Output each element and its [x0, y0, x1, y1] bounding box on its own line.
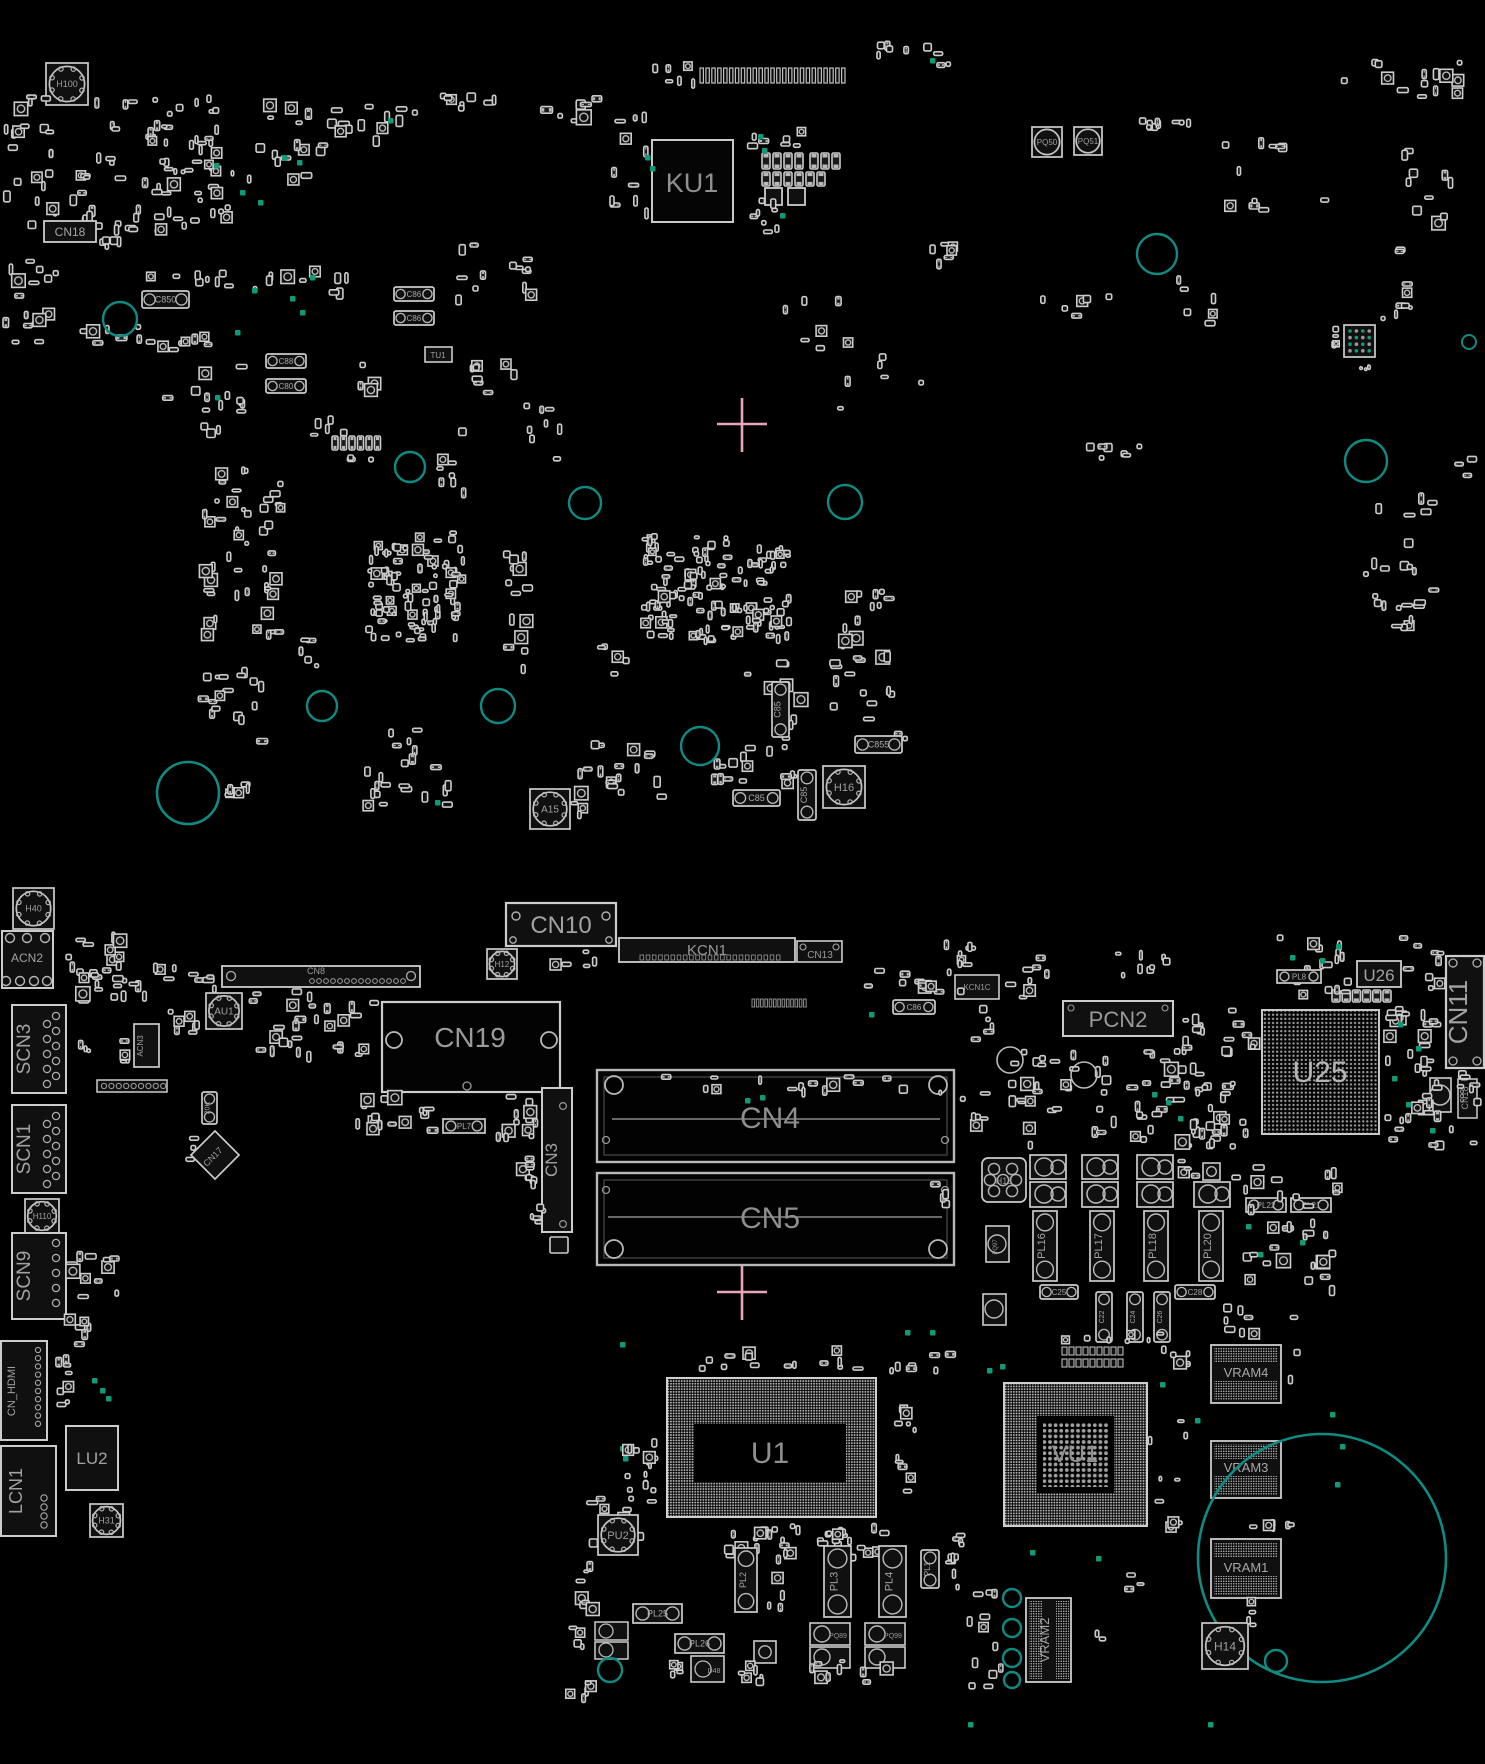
- svg-text:PL7: PL7: [457, 1122, 472, 1131]
- svg-text:VRAM1: VRAM1: [1224, 1560, 1269, 1575]
- svg-text:U25: U25: [1292, 1056, 1347, 1089]
- svg-text:LU2: LU2: [76, 1449, 107, 1468]
- svg-text:PL26: PL26: [689, 1639, 710, 1649]
- svg-text:AU1: AU1: [214, 1007, 234, 1018]
- svg-text:KCN1C: KCN1C: [963, 983, 990, 992]
- svg-text:PL4: PL4: [884, 1572, 896, 1592]
- svg-text:PQ51: PQ51: [1078, 137, 1099, 146]
- svg-text:C85: C85: [748, 793, 765, 803]
- svg-text:CN10: CN10: [530, 912, 591, 939]
- svg-text:H110: H110: [33, 1212, 52, 1221]
- svg-text:SCN1: SCN1: [14, 1124, 35, 1175]
- svg-text:C85: C85: [773, 701, 783, 718]
- svg-text:PU2: PU2: [607, 1530, 628, 1542]
- svg-text:C80: C80: [279, 382, 294, 391]
- svg-text:PL3: PL3: [829, 1572, 841, 1592]
- svg-text:C88: C88: [279, 357, 294, 366]
- svg-text:PL16: PL16: [1036, 1233, 1048, 1259]
- svg-text:PL18: PL18: [1147, 1233, 1159, 1259]
- svg-text:H13: H13: [996, 1176, 1013, 1186]
- svg-text:A15: A15: [541, 805, 559, 816]
- svg-text:H12: H12: [495, 960, 510, 969]
- svg-text:PQ99: PQ99: [884, 1633, 902, 1640]
- svg-text:H31: H31: [98, 1516, 115, 1526]
- svg-text:PL8: PL8: [1292, 972, 1307, 981]
- svg-text:U26: U26: [1363, 966, 1394, 985]
- svg-text:C26: C26: [1157, 1310, 1164, 1323]
- svg-text:CN_HDMI: CN_HDMI: [6, 1366, 18, 1416]
- svg-text:ACN3: ACN3: [136, 1035, 145, 1057]
- svg-text:CN19: CN19: [434, 1022, 506, 1053]
- svg-text:20K: 20K: [205, 1101, 212, 1114]
- svg-text:PQ50: PQ50: [1037, 138, 1058, 147]
- svg-text:C28: C28: [1188, 1288, 1203, 1297]
- svg-text:C86: C86: [407, 314, 422, 323]
- svg-text:C850: C850: [155, 295, 177, 305]
- svg-text:PL2: PL2: [738, 1572, 748, 1588]
- svg-text:C25: C25: [1052, 1288, 1067, 1297]
- svg-text:H40: H40: [25, 904, 42, 914]
- svg-text:VRAM4: VRAM4: [1224, 1365, 1269, 1380]
- svg-text:C22: C22: [1099, 1310, 1106, 1323]
- svg-text:TU1: TU1: [430, 351, 446, 360]
- svg-text:PQ97: PQ97: [993, 1239, 999, 1255]
- svg-text:CN5: CN5: [740, 1202, 800, 1235]
- svg-text:PL20: PL20: [1202, 1233, 1214, 1259]
- svg-text:H14: H14: [1214, 1639, 1236, 1653]
- svg-text:C86: C86: [407, 290, 422, 299]
- svg-text:CN3: CN3: [542, 1143, 561, 1177]
- svg-text:U1: U1: [751, 1437, 789, 1470]
- svg-text:PL25: PL25: [647, 1609, 668, 1619]
- svg-text:C24: C24: [1130, 1310, 1137, 1323]
- svg-text:H100: H100: [56, 79, 78, 89]
- svg-text:SCN3: SCN3: [14, 1024, 35, 1075]
- svg-text:CN4: CN4: [740, 1102, 800, 1135]
- svg-text:PQ89: PQ89: [829, 1633, 847, 1640]
- svg-text:C85: C85: [799, 787, 809, 804]
- svg-text:C86: C86: [907, 1003, 922, 1012]
- svg-text:SCN9: SCN9: [14, 1251, 35, 1302]
- svg-text:PCN2: PCN2: [1089, 1007, 1148, 1032]
- svg-text:PL22: PL22: [1257, 1201, 1276, 1210]
- svg-text:KU1: KU1: [666, 168, 719, 198]
- svg-text:VU1: VU1: [1052, 1441, 1099, 1468]
- svg-text:H16: H16: [834, 782, 854, 794]
- svg-text:ACN2: ACN2: [11, 951, 43, 965]
- svg-text:CN18: CN18: [55, 225, 86, 239]
- svg-text:VRAM2: VRAM2: [1037, 1618, 1052, 1663]
- svg-text:LCN1: LCN1: [6, 1468, 26, 1514]
- svg-text:C855: C855: [868, 740, 890, 750]
- svg-text:PL17: PL17: [1093, 1233, 1105, 1259]
- svg-text:CN8: CN8: [307, 966, 325, 976]
- svg-text:PL1: PL1: [923, 1561, 932, 1576]
- svg-text:D48: D48: [708, 1668, 721, 1675]
- svg-text:CN13: CN13: [807, 950, 833, 961]
- svg-text:CN11: CN11: [1443, 980, 1473, 1045]
